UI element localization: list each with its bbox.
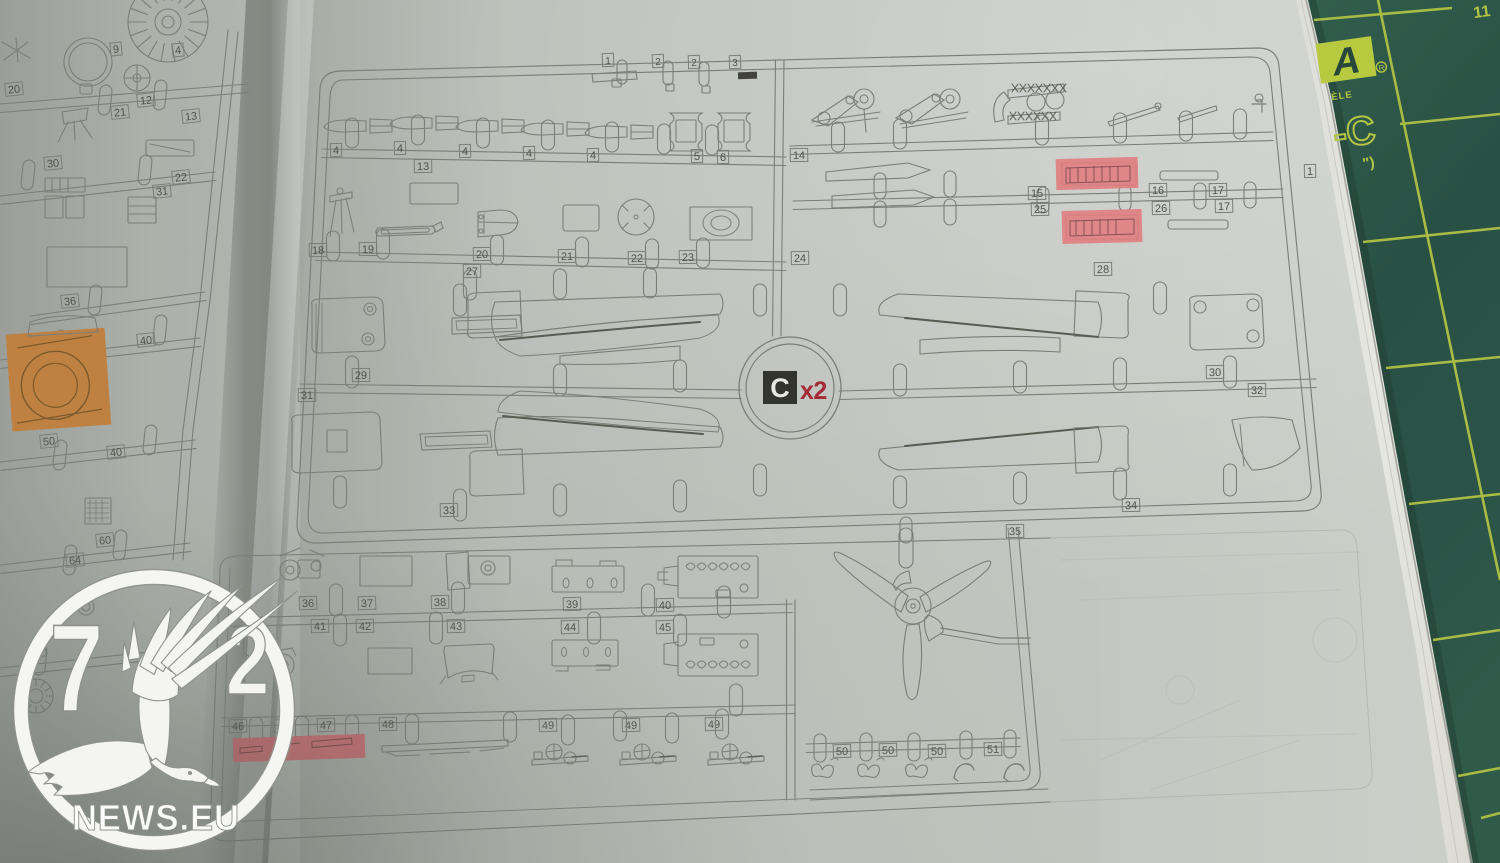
svg-text:NEWS.EU: NEWS.EU [72,797,240,838]
svg-text:7: 7 [49,598,103,737]
